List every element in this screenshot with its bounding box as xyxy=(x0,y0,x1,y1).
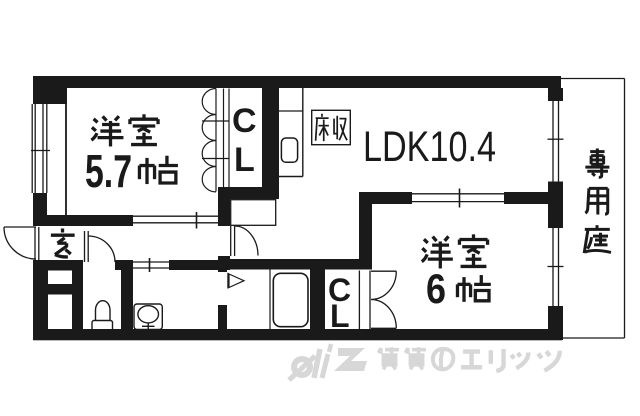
svg-text:C: C xyxy=(232,102,257,140)
svg-text:6: 6 xyxy=(426,265,446,312)
svg-text:5.7: 5.7 xyxy=(85,145,132,197)
svg-text:L: L xyxy=(234,141,255,179)
svg-text:L: L xyxy=(330,298,350,334)
svg-text:LDK10.4: LDK10.4 xyxy=(363,123,496,171)
